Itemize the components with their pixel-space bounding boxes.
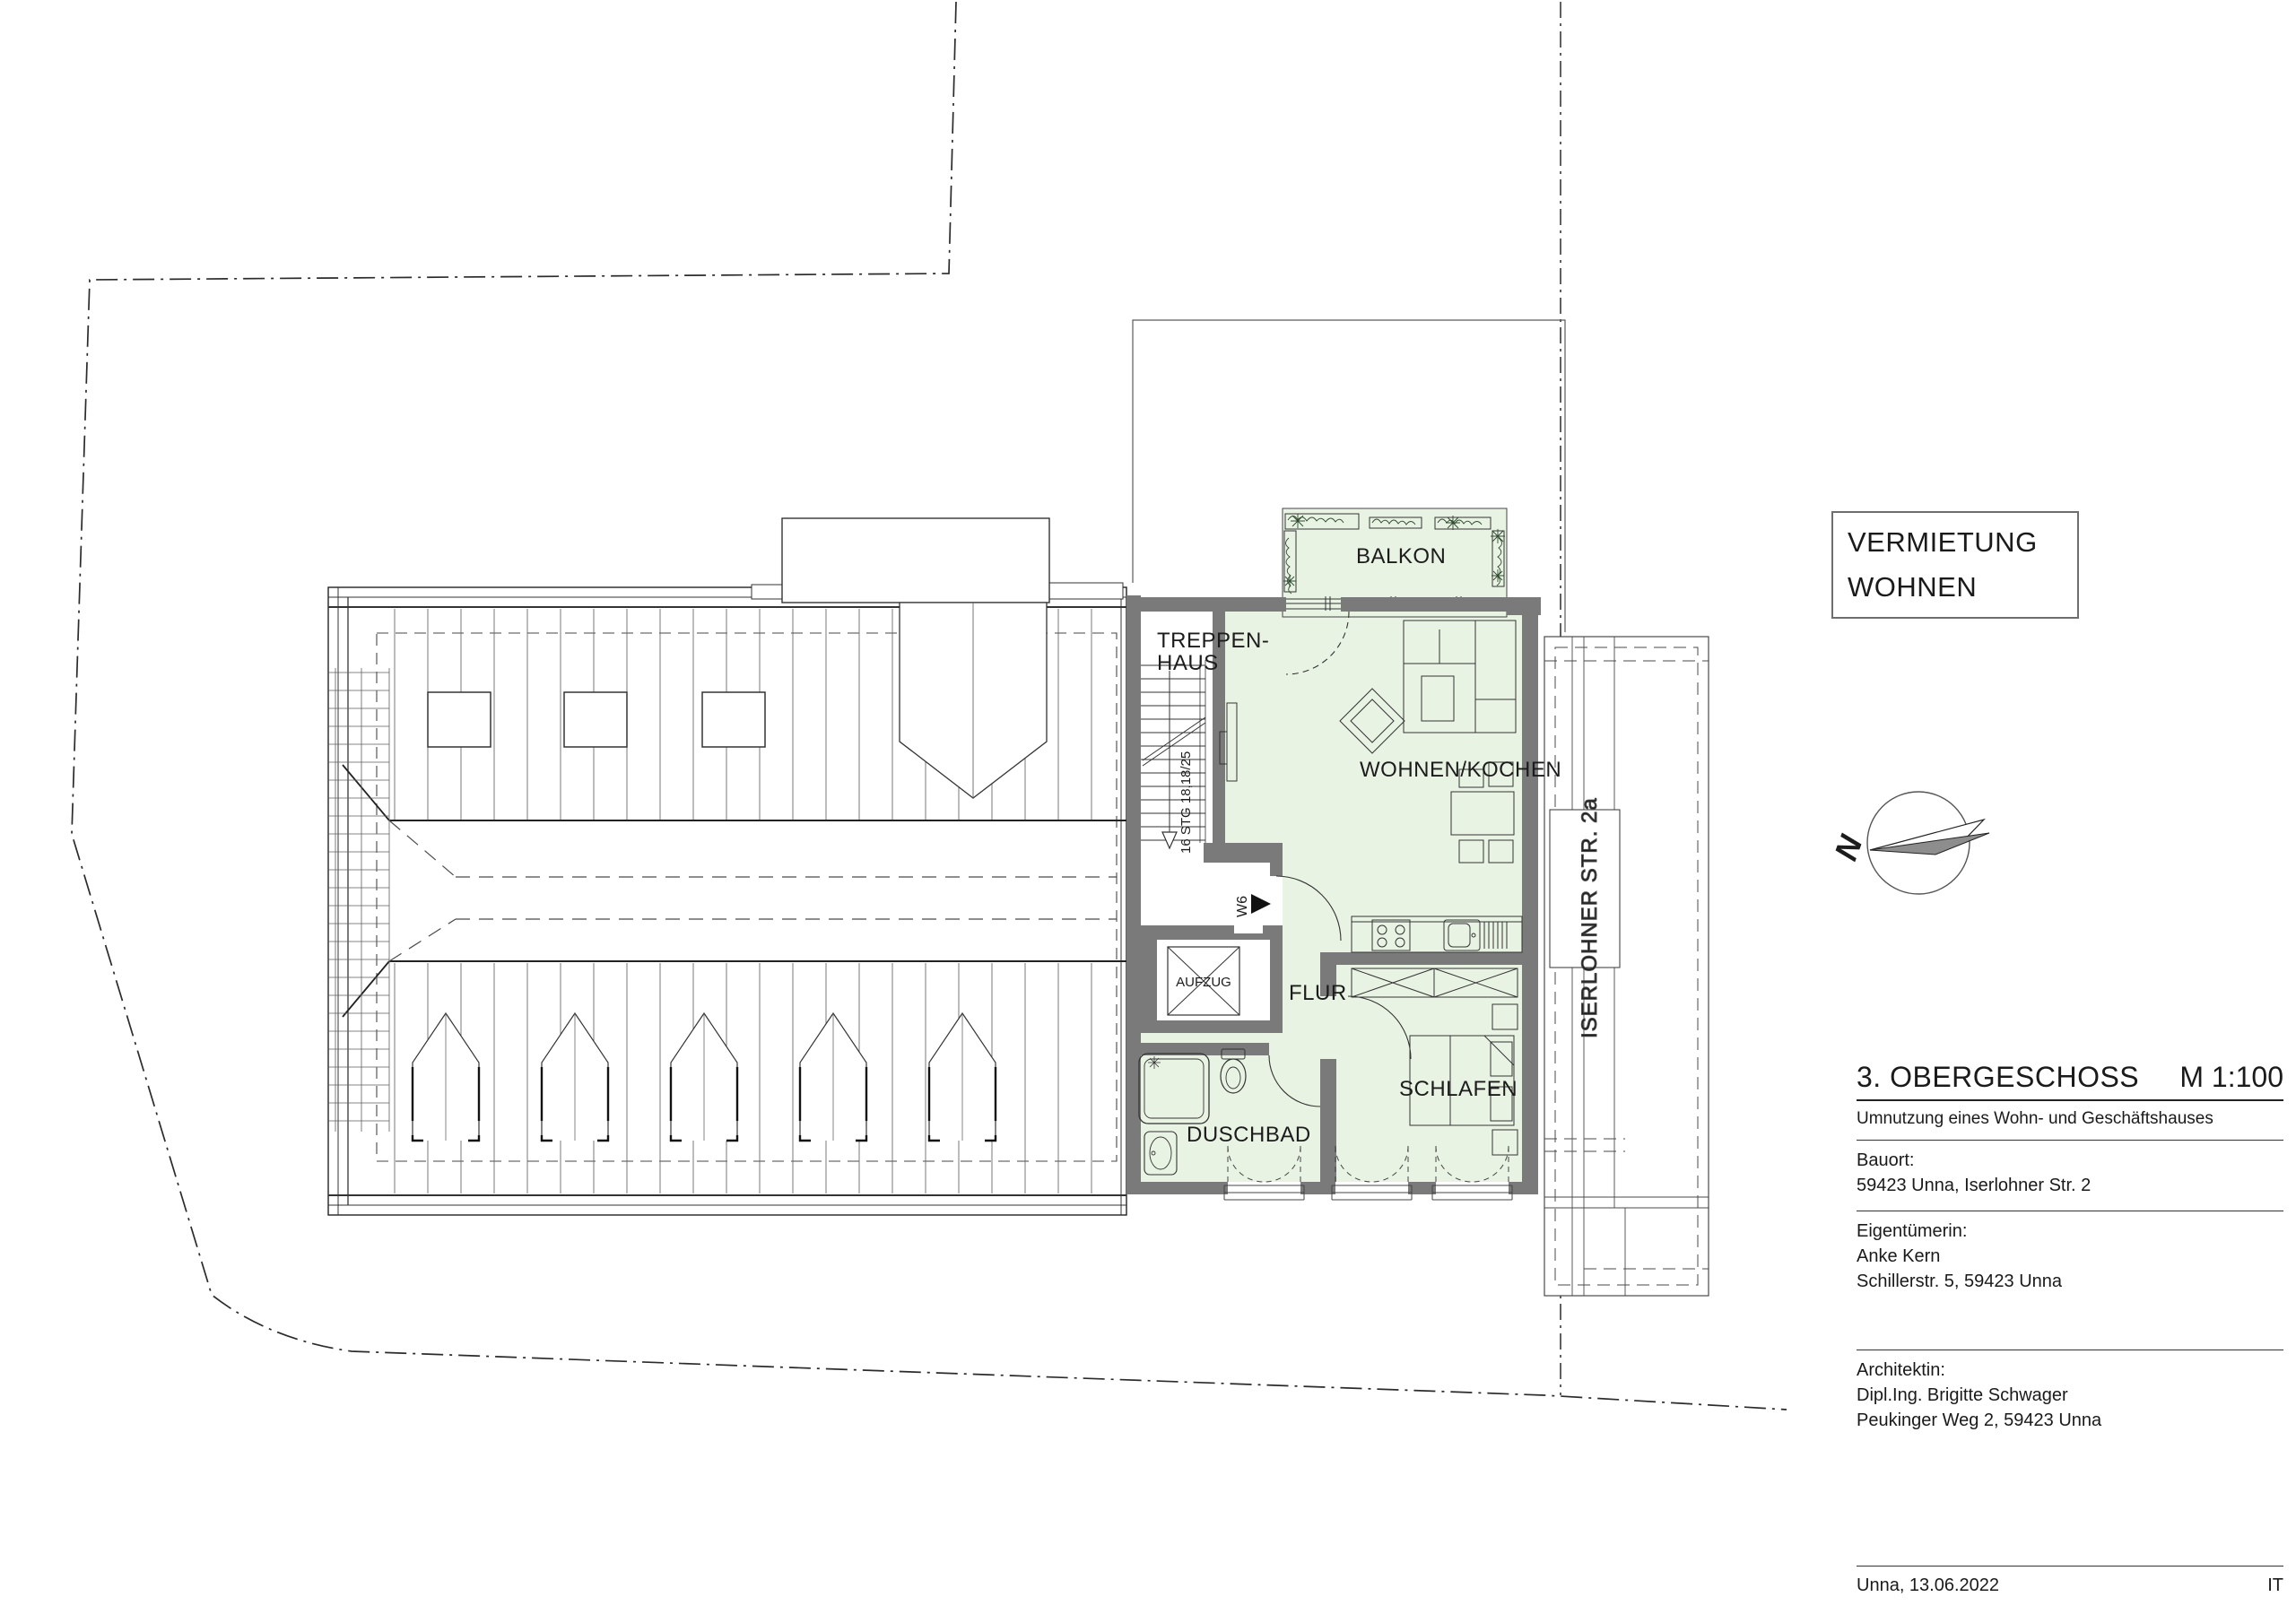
owner-name: Anke Kern [1857,1244,2283,1269]
north-arrow: N [1827,792,1989,894]
shower-drain-icon [1148,1056,1161,1069]
elevator-door-gap [1234,925,1263,933]
usage-line2: WOHNEN [1848,565,2077,610]
room-label-treppenhaus-2: HAUS [1157,651,1219,675]
apartment-unit: BALKON [1126,508,1561,1200]
architect-address: Peukinger Weg 2, 59423 Unna [1857,1408,2283,1433]
footer-initials: IT [2267,1575,2283,1596]
room-label-wohnen: WOHNEN/KOCHEN [1360,758,1561,782]
title-block: 3. OBERGESCHOSS M 1:100 Umnutzung eines … [1857,1061,2283,1596]
room-label-treppenhaus-1: TREPPEN- [1157,629,1269,653]
room-label-schlafen: SCHLAFEN [1399,1077,1518,1101]
entry-marker-label: W6 [1235,896,1250,917]
sheet-subtitle: Umnutzung eines Wohn- und Geschäftshause… [1857,1109,2283,1129]
usage-line1: VERMIETUNG [1848,520,2077,565]
room-label-flur: FLUR [1289,981,1347,1005]
bauort-value: 59423 Unna, Iserlohner Str. 2 [1857,1173,2283,1198]
sheet-title: 3. OBERGESCHOSS [1857,1061,2139,1094]
title-block-footer: Unna, 13.06.2022 IT [1857,1567,2283,1596]
title-row: 3. OBERGESCHOSS M 1:100 [1857,1061,2283,1101]
room-label-duschbad: DUSCHBAD [1187,1123,1311,1147]
owner-label: Eigentümerin: [1857,1219,2283,1244]
elevator: AUFZUG [1157,940,1270,1020]
floor-plan-sheet: ISERLOHNER STR. 2a [0,0,2296,1623]
owner-address: Schillerstr. 5, 59423 Unna [1857,1269,2283,1294]
architect-name: Dipl.Ing. Brigitte Schwager [1857,1383,2283,1408]
architect-label: Architektin: [1857,1358,2283,1383]
neighbor-building: ISERLOHNER STR. 2a [1544,637,1709,1296]
usage-info-box: VERMIETUNG WOHNEN [1831,511,2079,619]
stair-note: 16 STG 18,18/25 [1178,751,1194,854]
north-letter: N [1827,829,1870,864]
bauort-label: Bauort: [1857,1148,2283,1173]
roof-skylights [428,692,765,747]
room-label-balkon: BALKON [1356,544,1446,568]
sheet-scale: M 1:100 [2179,1061,2283,1094]
room-label-aufzug: AUFZUG [1176,975,1231,990]
footer-date: Unna, 13.06.2022 [1857,1575,1999,1596]
roof-building [328,518,1126,1215]
street-label: ISERLOHNER STR. 2a [1578,797,1602,1038]
